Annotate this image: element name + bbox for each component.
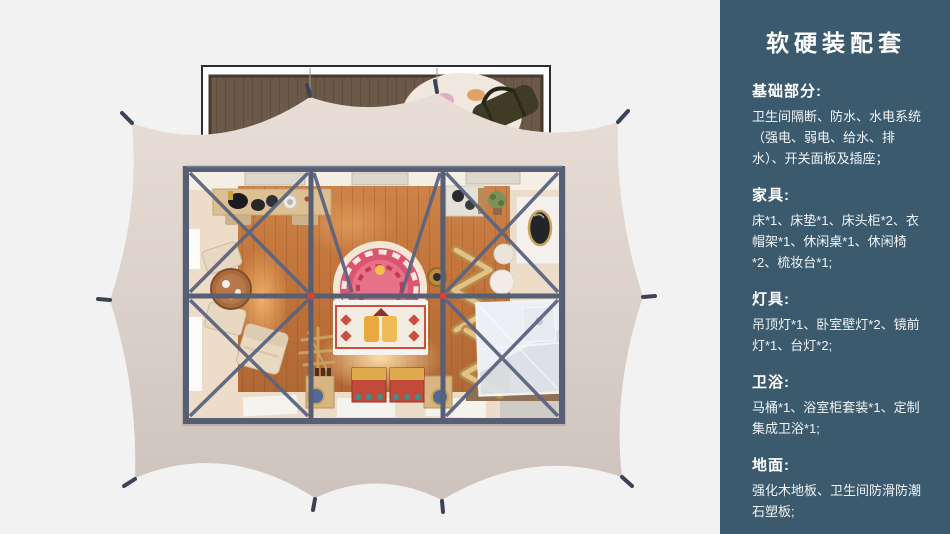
nightstand-right bbox=[424, 376, 452, 408]
section-body: 卫生间隔断、防水、水电系统（强电、弱电、给水、排水）、开关面板及插座； bbox=[752, 106, 924, 169]
section-heading: 卫浴: bbox=[752, 371, 924, 392]
section-basics: 基础部分: 卫生间隔断、防水、水电系统（强电、弱电、给水、排水）、开关面板及插座… bbox=[752, 80, 924, 169]
section-bathroom: 卫浴: 马桶*1、浴室柜套装*1、定制集成卫浴*1; bbox=[752, 371, 924, 439]
gold-bottle bbox=[228, 191, 233, 200]
ceiling-vents bbox=[245, 172, 520, 185]
section-flooring: 地面: 强化木地板、卫生间防滑防潮石塑板; bbox=[752, 454, 924, 522]
section-body: 吊顶灯*1、卧室壁灯*2、镜前灯*1、台灯*2; bbox=[752, 314, 924, 356]
red-joint-left bbox=[308, 293, 315, 300]
round-chair bbox=[490, 270, 514, 294]
sidebar-title: 软硬装配套 bbox=[748, 24, 924, 58]
vanity-stool bbox=[494, 244, 514, 264]
section-body: 马桶*1、浴室柜套装*1、定制集成卫浴*1; bbox=[752, 397, 924, 439]
floorplan-panel bbox=[0, 0, 720, 534]
spec-sidebar: 软硬装配套 基础部分: 卫生间隔断、防水、水电系统（强电、弱电、给水、排水）、开… bbox=[720, 0, 950, 534]
round-tea-table bbox=[211, 269, 251, 309]
section-heading: 家具: bbox=[752, 184, 924, 205]
red-joint-right bbox=[440, 293, 447, 300]
vanity-mirror bbox=[529, 211, 551, 245]
section-body: 强化木地板、卫生间防滑防潮石塑板; bbox=[752, 480, 924, 522]
bathroom-pod bbox=[476, 301, 563, 396]
floorplan-illustration bbox=[0, 0, 720, 534]
section-heading: 基础部分: bbox=[752, 80, 924, 101]
section-lighting: 灯具: 吊顶灯*1、卧室壁灯*2、镜前灯*1、台灯*2; bbox=[752, 288, 924, 356]
section-furniture: 家具: 床*1、床垫*1、床头柜*2、衣帽架*1、休闲桌*1、休闲椅*2、梳妆台… bbox=[752, 184, 924, 273]
section-heading: 地面: bbox=[752, 454, 924, 475]
section-body: 床*1、床垫*1、床头柜*2、衣帽架*1、休闲桌*1、休闲椅*2、梳妆台*1; bbox=[752, 210, 924, 273]
section-heading: 灯具: bbox=[752, 288, 924, 309]
page: 软硬装配套 基础部分: 卫生间隔断、防水、水电系统（强电、弱电、给水、排水）、开… bbox=[0, 0, 950, 534]
